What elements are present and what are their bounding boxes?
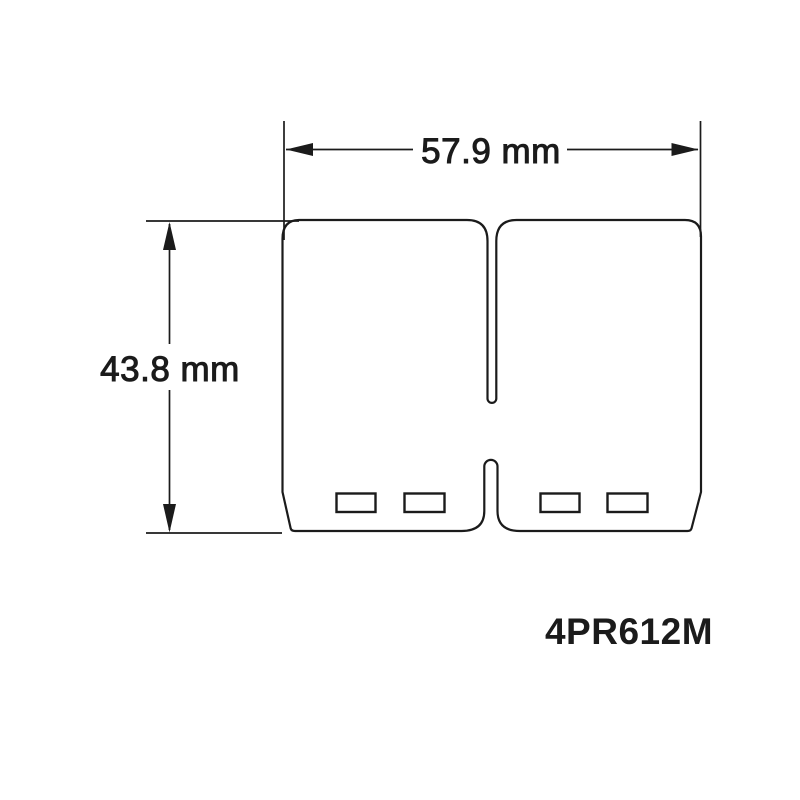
width-arrowhead-right-icon	[672, 143, 699, 156]
width-dimension-group: 57.9 mm	[284, 121, 701, 240]
part-number-label: 4PR612M	[545, 611, 713, 652]
mounting-slot-2	[405, 494, 445, 513]
height-arrowhead-down-icon	[163, 504, 176, 533]
technical-drawing-canvas: 57.9 mm 43.8 mm 4PR612M	[0, 0, 800, 800]
mounting-slot-1	[337, 494, 376, 513]
height-arrowhead-up-icon	[163, 222, 176, 250]
mounting-slot-3	[541, 494, 580, 513]
part-outline-group	[283, 220, 702, 531]
height-dimension-group: 43.8 mm	[100, 221, 299, 533]
mounting-slot-4	[608, 494, 648, 513]
reed-petal-diagram: 57.9 mm 43.8 mm 4PR612M	[0, 0, 800, 800]
reed-petal-outline	[283, 220, 702, 531]
width-arrowhead-left-icon	[286, 143, 313, 156]
height-dimension-label: 43.8 mm	[100, 350, 240, 389]
width-dimension-label: 57.9 mm	[421, 132, 561, 171]
